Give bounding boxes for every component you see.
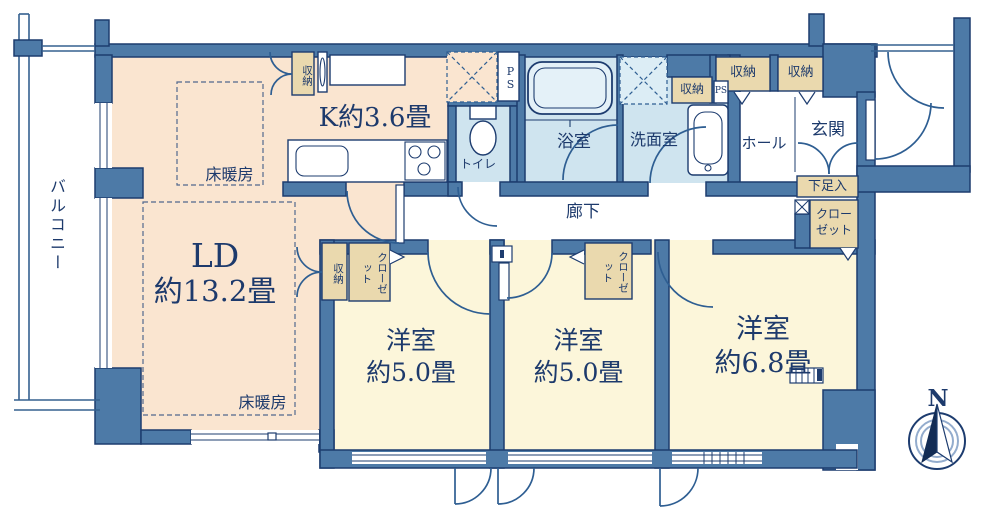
kitchen-label: K約3.6畳 <box>300 103 450 134</box>
bedroom3-floor-lower <box>669 390 823 450</box>
bedroom3-label: 洋室 <box>669 314 857 346</box>
ld-label: LD <box>165 236 265 276</box>
meter-box <box>795 200 809 214</box>
bedroom1-window <box>352 452 486 464</box>
door-hinge-box <box>492 246 512 262</box>
kitchen-storage-label: 収納 <box>293 56 313 94</box>
floor-heating-label-ld: 床暖房 <box>225 393 300 412</box>
washbasin-vanity <box>688 105 728 175</box>
bedroom2-label: 洋室 <box>503 326 654 356</box>
compass-north-label: N <box>923 385 953 413</box>
toilet-label: トイレ <box>456 157 500 171</box>
washroom-label: 洗面室 <box>624 130 684 149</box>
hall-storage-label-1: 収納 <box>720 65 766 81</box>
floorplan-drawing <box>0 0 986 517</box>
compass <box>909 404 965 469</box>
ldk-door-gap <box>346 182 402 196</box>
floorplan-canvas: バルコニー K約3.6畳 LD 約13.2畳 床暖房 床暖房 トイレ 浴室 洗面… <box>0 0 986 517</box>
floor-heating-label-kitchen: 床暖房 <box>192 165 267 184</box>
bedroom1-label: 洋室 <box>333 326 489 356</box>
balcony-window-ld-bottom <box>191 430 319 444</box>
washroom-storage-label: 収納 <box>674 82 710 96</box>
shoe-cabinet-label: 下足入 <box>799 179 856 195</box>
refrigerator-space <box>447 52 497 102</box>
bedroom1-storage-label: 収納 <box>326 250 344 296</box>
casement-window-arcs <box>455 468 698 506</box>
toilet-fixture <box>470 106 496 155</box>
hall-label: ホール <box>736 134 792 152</box>
entrance-closet-label: クローゼット <box>812 206 856 238</box>
bath-label: 浴室 <box>550 132 598 152</box>
bedroom1-closet-label: クローゼット <box>351 247 389 299</box>
bedroom1-door-gap <box>428 240 490 254</box>
bedroom2-size-label: 約5.0畳 <box>503 358 654 388</box>
bedroom2-door-leaf <box>499 263 509 300</box>
hall-storage-label-2: 収納 <box>779 65 822 81</box>
pipe-space-label: PS <box>500 57 517 99</box>
bedroom2-closet-label: クローゼット <box>588 246 630 298</box>
balcony-window-ld-left <box>95 103 112 368</box>
bedroom1-size-label: 約5.0畳 <box>333 358 489 388</box>
bedroom2-window <box>508 452 652 464</box>
kitchen-cabinet <box>330 55 405 85</box>
corridor-label: 廊下 <box>561 202 605 222</box>
washer-space <box>620 57 667 104</box>
front-door-leaf <box>866 100 875 160</box>
balcony-label: バルコニー <box>40 168 66 283</box>
pipe-space-small-label: PS <box>713 86 729 97</box>
entrance-label: 玄関 <box>809 120 847 140</box>
ld-size-label: 約13.2畳 <box>125 274 305 309</box>
bedroom3-size-label: 約6.8畳 <box>669 348 857 380</box>
bedroom3-window <box>672 452 762 464</box>
ldk-door-leaf <box>396 185 404 243</box>
